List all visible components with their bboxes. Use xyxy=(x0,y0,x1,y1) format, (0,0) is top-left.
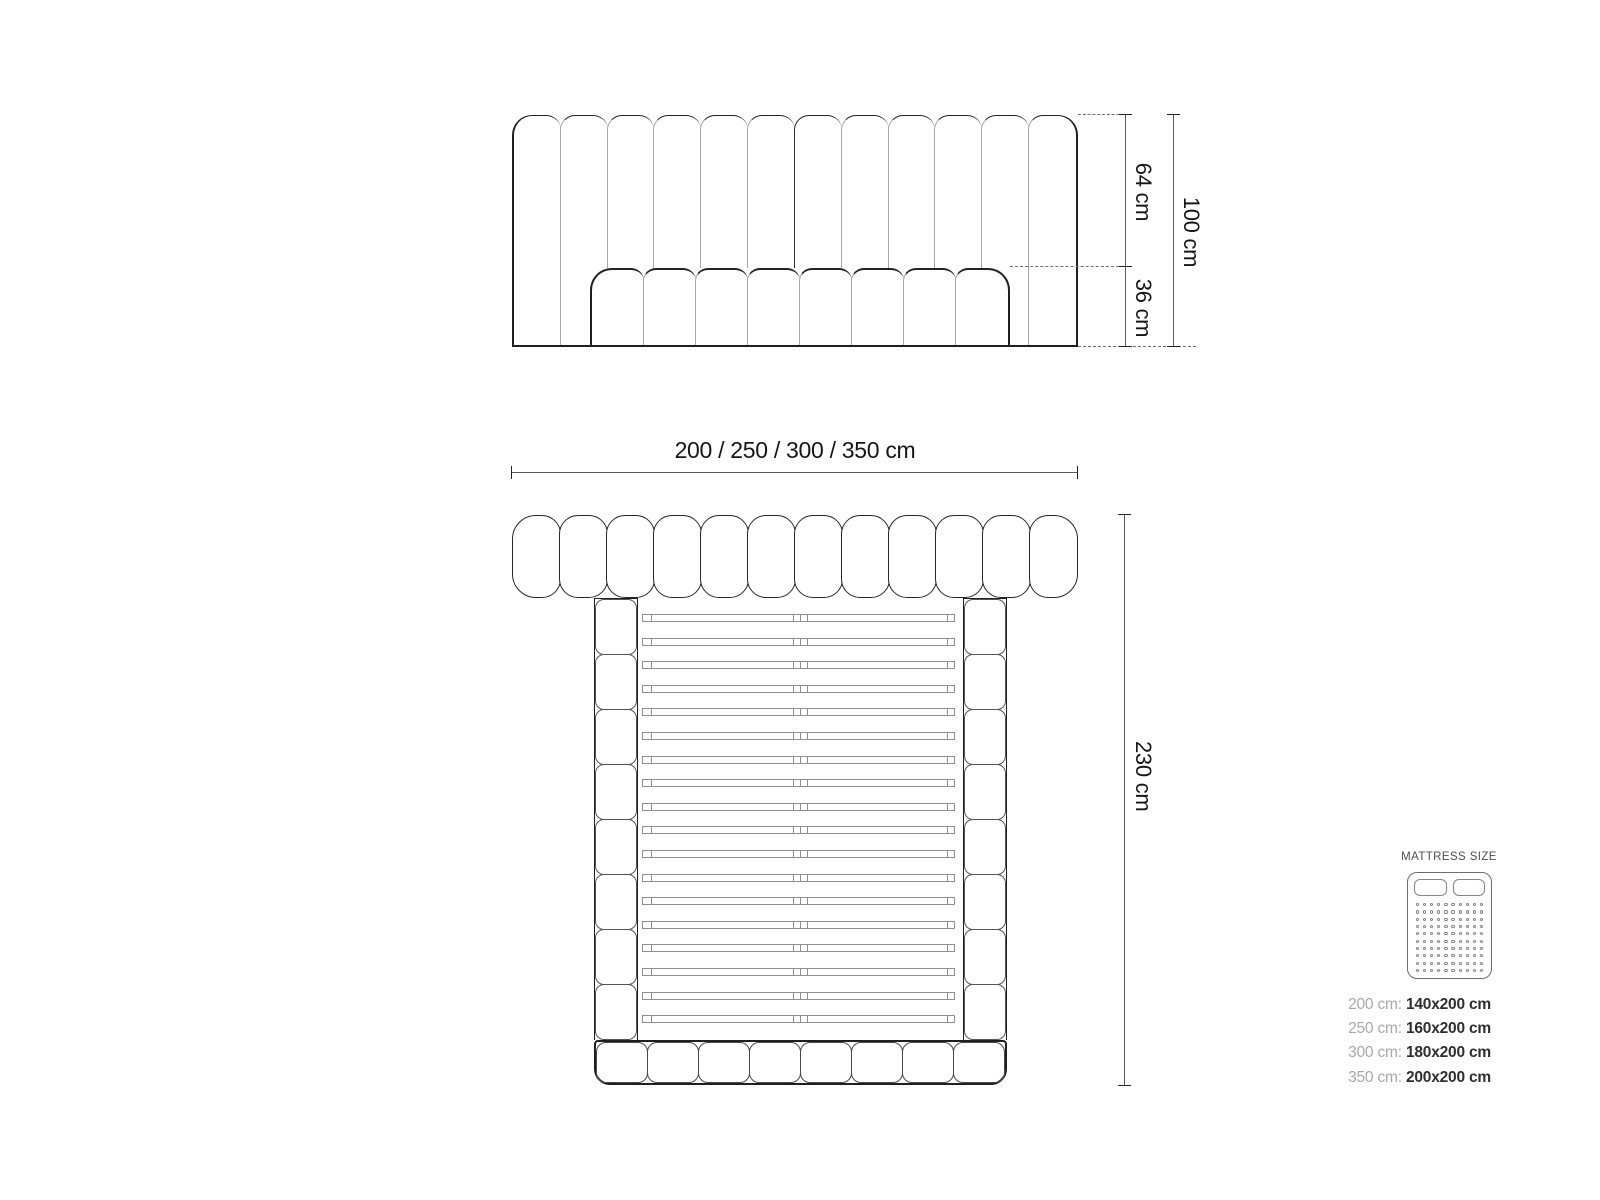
mattress-dot xyxy=(1416,962,1419,965)
slat-tick xyxy=(651,969,652,975)
slat-tick xyxy=(807,827,808,833)
slat-tick xyxy=(800,615,801,621)
slat-tick xyxy=(800,945,801,951)
slat-tick xyxy=(947,662,948,668)
mattress-dot xyxy=(1430,940,1433,943)
slat-tick xyxy=(807,733,808,739)
mattress-dot xyxy=(1480,910,1483,913)
slat-tick xyxy=(807,639,808,645)
rail-tuft xyxy=(595,709,637,765)
mattress-dot xyxy=(1480,962,1483,965)
mattress-dot xyxy=(1473,910,1476,913)
rail-tuft xyxy=(964,709,1006,765)
mattress-dot xyxy=(1416,932,1419,935)
headboard-tuft xyxy=(606,515,655,598)
mattress-dot xyxy=(1423,962,1426,965)
tick xyxy=(1077,466,1078,479)
pillow-row xyxy=(1414,879,1485,896)
headboard-tuft xyxy=(888,515,937,598)
mattress-size-value: 140x200 cm xyxy=(1406,996,1491,1013)
mattress-dot xyxy=(1451,969,1454,972)
mattress-dot xyxy=(1437,925,1440,928)
mattress-dot xyxy=(1444,910,1447,913)
headboard-tuft xyxy=(1029,515,1078,598)
slat-tick xyxy=(947,615,948,621)
mattress-dot xyxy=(1459,947,1462,950)
mattress-dot xyxy=(1430,969,1433,972)
dim-line-depth xyxy=(1124,515,1125,1086)
slat-tick xyxy=(947,709,948,715)
mattress-dot xyxy=(1459,962,1462,965)
slat-tick xyxy=(807,875,808,881)
slat-tick xyxy=(800,969,801,975)
legend-size-list: 200 cm: 140x200 cm 250 cm: 160x200 cm 30… xyxy=(1290,993,1491,1090)
base-cushion xyxy=(851,268,904,345)
slat-tick xyxy=(651,898,652,904)
mattress-dot xyxy=(1473,925,1476,928)
footboard-tuft xyxy=(647,1042,699,1083)
mattress-dot xyxy=(1473,918,1476,921)
mattress-dot xyxy=(1459,903,1462,906)
slat xyxy=(642,992,955,1000)
slat-tick xyxy=(947,945,948,951)
slat xyxy=(642,638,955,646)
tick xyxy=(511,466,512,479)
slat-tick xyxy=(800,851,801,857)
mattress-dot xyxy=(1473,954,1476,957)
mattress-dot xyxy=(1437,918,1440,921)
mattress-dot xyxy=(1444,918,1447,921)
plan-headboard xyxy=(512,515,1078,598)
slat-tick xyxy=(651,993,652,999)
slat-tick xyxy=(793,615,794,621)
slat-tick xyxy=(793,969,794,975)
slat-tick xyxy=(800,709,801,715)
base-cushion xyxy=(590,268,644,345)
slat-tick xyxy=(651,780,652,786)
mattress-dot xyxy=(1480,947,1483,950)
rail-tuft xyxy=(964,599,1006,655)
pillow-icon xyxy=(1453,879,1486,896)
slat xyxy=(642,944,955,952)
slat-tick xyxy=(800,1016,801,1022)
mattress-dot xyxy=(1466,910,1469,913)
slat-tick xyxy=(807,969,808,975)
slat xyxy=(642,874,955,882)
slat-tick xyxy=(651,733,652,739)
mattress-dot xyxy=(1459,954,1462,957)
headboard-tuft xyxy=(700,515,749,598)
mattress-dot xyxy=(1416,903,1419,906)
mattress-dot xyxy=(1423,925,1426,928)
mattress-dot xyxy=(1430,925,1433,928)
slat xyxy=(642,1015,955,1023)
plan-slat-area xyxy=(642,614,955,1026)
slat-tick xyxy=(807,922,808,928)
mattress-dot xyxy=(1473,932,1476,935)
slat-tick xyxy=(807,1016,808,1022)
slat-tick xyxy=(800,733,801,739)
base-cushion xyxy=(695,268,748,345)
slat-tick xyxy=(800,922,801,928)
mattress-dot xyxy=(1437,954,1440,957)
footboard-tuft xyxy=(749,1042,801,1083)
headboard-tuft xyxy=(747,515,796,598)
mattress-dot xyxy=(1416,969,1419,972)
slat-tick xyxy=(947,922,948,928)
mattress-dot xyxy=(1480,940,1483,943)
slat xyxy=(642,968,955,976)
slat-tick xyxy=(947,639,948,645)
mattress-dot xyxy=(1459,940,1462,943)
rail-tuft xyxy=(964,929,1006,985)
mattress-dot xyxy=(1437,903,1440,906)
headboard-tuft xyxy=(841,515,890,598)
slat-tick xyxy=(947,851,948,857)
plan-side-rail-left xyxy=(594,598,638,1040)
slat-tick xyxy=(947,993,948,999)
pillow-icon xyxy=(1414,879,1447,896)
mattress-dot xyxy=(1451,954,1454,957)
mattress-dot xyxy=(1480,903,1483,906)
mattress-dot xyxy=(1451,947,1454,950)
rail-tuft xyxy=(595,654,637,710)
slat-tick xyxy=(651,851,652,857)
mattress-dot xyxy=(1423,940,1426,943)
slat-tick xyxy=(800,757,801,763)
slat-tick xyxy=(807,780,808,786)
tick xyxy=(1118,1085,1131,1086)
slat-tick xyxy=(800,662,801,668)
mattress-size-value: 160x200 cm xyxy=(1406,1020,1491,1037)
mattress-dot xyxy=(1416,940,1419,943)
mattress-dot xyxy=(1437,932,1440,935)
mattress-dot xyxy=(1416,910,1419,913)
tick xyxy=(1167,346,1180,347)
slat xyxy=(642,850,955,858)
slat-tick xyxy=(651,662,652,668)
slat-tick xyxy=(800,804,801,810)
slat-tick xyxy=(651,639,652,645)
slat-tick xyxy=(807,851,808,857)
rail-tuft xyxy=(595,929,637,985)
mattress-dot xyxy=(1480,932,1483,935)
legend-row: 200 cm: 140x200 cm xyxy=(1290,993,1491,1017)
slat-tick xyxy=(947,686,948,692)
slat-tick xyxy=(800,780,801,786)
dim-label-total-height: 100 cm xyxy=(1178,192,1204,272)
slat-tick xyxy=(807,993,808,999)
mattress-dot xyxy=(1430,903,1433,906)
footboard-tuft xyxy=(953,1042,1005,1083)
extension-dash-middle xyxy=(1010,266,1129,267)
mattress-dot xyxy=(1459,910,1462,913)
slat-tick xyxy=(651,922,652,928)
mattress-dot xyxy=(1423,947,1426,950)
slat-tick xyxy=(793,709,794,715)
slat-tick xyxy=(793,733,794,739)
slat-tick xyxy=(947,898,948,904)
mattress-dot-grid xyxy=(1414,903,1485,972)
slat-tick xyxy=(651,615,652,621)
rail-tuft xyxy=(595,874,637,930)
slat-tick xyxy=(651,875,652,881)
slat-tick xyxy=(947,804,948,810)
slat-tick xyxy=(947,875,948,881)
mattress-dot xyxy=(1459,932,1462,935)
headboard-panel xyxy=(1028,115,1078,345)
slat xyxy=(642,614,955,622)
mattress-dot xyxy=(1437,940,1440,943)
rail-tuft xyxy=(595,764,637,820)
mattress-dot xyxy=(1480,954,1483,957)
slat-tick xyxy=(651,827,652,833)
slat-tick xyxy=(793,686,794,692)
slat-tick xyxy=(793,875,794,881)
headboard-tuft xyxy=(653,515,702,598)
rail-tuft xyxy=(595,819,637,875)
legend-row: 250 cm: 160x200 cm xyxy=(1290,1017,1491,1041)
slat-tick xyxy=(807,662,808,668)
footboard-tuft xyxy=(698,1042,750,1083)
mattress-dot xyxy=(1480,918,1483,921)
slat-tick xyxy=(800,993,801,999)
mattress-dot xyxy=(1451,925,1454,928)
mattress-dot xyxy=(1444,940,1447,943)
mattress-dot xyxy=(1466,925,1469,928)
footboard-tuft xyxy=(596,1042,648,1083)
mattress-dot xyxy=(1459,925,1462,928)
front-bed-base xyxy=(590,268,1010,347)
mattress-dot xyxy=(1416,954,1419,957)
slat-tick xyxy=(651,1016,652,1022)
slat-tick xyxy=(947,757,948,763)
slat-tick xyxy=(947,733,948,739)
mattress-dot xyxy=(1473,962,1476,965)
mattress-dot xyxy=(1466,903,1469,906)
mattress-dot xyxy=(1451,940,1454,943)
mattress-dot xyxy=(1430,918,1433,921)
slat-tick xyxy=(793,898,794,904)
slat-tick xyxy=(793,757,794,763)
slat-tick xyxy=(800,639,801,645)
headboard-tuft xyxy=(982,515,1031,598)
mattress-dot xyxy=(1430,947,1433,950)
legend-title: MATTRESS SIZE xyxy=(1394,851,1504,863)
mattress-dot xyxy=(1473,903,1476,906)
slat-tick xyxy=(800,827,801,833)
slat-tick xyxy=(800,686,801,692)
base-cushion xyxy=(643,268,696,345)
mattress-dot xyxy=(1423,932,1426,935)
mattress-size-value: 180x200 cm xyxy=(1406,1044,1491,1061)
headboard-tuft xyxy=(935,515,984,598)
footboard-tuft xyxy=(902,1042,954,1083)
dim-line-total-height xyxy=(1173,115,1174,347)
mattress-dot xyxy=(1444,932,1447,935)
mattress-dot xyxy=(1416,925,1419,928)
mattress-dot xyxy=(1423,910,1426,913)
mattress-dot xyxy=(1451,918,1454,921)
dim-line-height-segments xyxy=(1125,115,1126,347)
mattress-dot xyxy=(1437,910,1440,913)
mattress-dot xyxy=(1466,932,1469,935)
mattress-dot xyxy=(1466,962,1469,965)
mattress-dot xyxy=(1480,925,1483,928)
mattress-dot xyxy=(1444,969,1447,972)
slat-tick xyxy=(793,1016,794,1022)
slat-tick xyxy=(651,709,652,715)
mattress-dot xyxy=(1466,954,1469,957)
slat-tick xyxy=(793,922,794,928)
rail-tuft xyxy=(964,764,1006,820)
base-cushion xyxy=(799,268,852,345)
mattress-dot xyxy=(1416,918,1419,921)
mattress-dot xyxy=(1437,969,1440,972)
mattress-dot xyxy=(1459,969,1462,972)
tick xyxy=(1167,114,1180,115)
slat xyxy=(642,756,955,764)
plan-footboard xyxy=(594,1040,1007,1085)
slat-tick xyxy=(947,969,948,975)
slat-tick xyxy=(793,804,794,810)
rail-tuft xyxy=(595,599,637,655)
tick xyxy=(1119,114,1132,115)
mattress-dot xyxy=(1430,910,1433,913)
slat-tick xyxy=(807,898,808,904)
mattress-dot xyxy=(1451,910,1454,913)
mattress-dot xyxy=(1451,962,1454,965)
mattress-dot xyxy=(1444,954,1447,957)
mattress-dot xyxy=(1466,969,1469,972)
dim-label-width-options: 200 / 250 / 300 / 350 cm xyxy=(645,437,945,464)
frame-size-label: 200 cm: xyxy=(1348,996,1402,1013)
frame-size-label: 350 cm: xyxy=(1348,1069,1402,1086)
slat xyxy=(642,732,955,740)
mattress-icon xyxy=(1407,872,1492,979)
mattress-dot xyxy=(1437,947,1440,950)
mattress-dot xyxy=(1473,940,1476,943)
slat-tick xyxy=(800,875,801,881)
slat-tick xyxy=(807,757,808,763)
mattress-dot xyxy=(1430,932,1433,935)
legend-row: 350 cm: 200x200 cm xyxy=(1290,1066,1491,1090)
rail-tuft xyxy=(964,984,1006,1040)
base-cushion xyxy=(903,268,956,345)
footboard-tuft xyxy=(800,1042,852,1083)
mattress-dot xyxy=(1423,903,1426,906)
mattress-dot xyxy=(1444,925,1447,928)
slat xyxy=(642,826,955,834)
headboard-panel xyxy=(512,115,561,345)
mattress-dot xyxy=(1466,947,1469,950)
slat-tick xyxy=(807,804,808,810)
mattress-dot xyxy=(1473,969,1476,972)
slat-tick xyxy=(793,851,794,857)
legend-row: 300 cm: 180x200 cm xyxy=(1290,1041,1491,1065)
dim-label-lower-height: 36 cm xyxy=(1130,273,1156,343)
slat-tick xyxy=(651,804,652,810)
slat-tick xyxy=(807,709,808,715)
base-cushion xyxy=(955,268,1010,345)
slat-tick xyxy=(793,639,794,645)
slat-tick xyxy=(651,945,652,951)
slat xyxy=(642,779,955,787)
mattress-dot xyxy=(1466,918,1469,921)
slat-tick xyxy=(800,898,801,904)
slat-tick xyxy=(793,827,794,833)
mattress-dot xyxy=(1451,932,1454,935)
base-cushion xyxy=(747,268,800,345)
tick xyxy=(1119,266,1132,267)
mattress-dot xyxy=(1423,969,1426,972)
slat xyxy=(642,661,955,669)
slat-tick xyxy=(807,686,808,692)
frame-size-label: 250 cm: xyxy=(1348,1020,1402,1037)
slat xyxy=(642,803,955,811)
slat xyxy=(642,685,955,693)
slat-tick xyxy=(807,945,808,951)
slat xyxy=(642,708,955,716)
headboard-tuft xyxy=(794,515,843,598)
slat-tick xyxy=(793,993,794,999)
dim-label-depth: 230 cm xyxy=(1130,741,1156,811)
mattress-dot xyxy=(1437,962,1440,965)
mattress-dot xyxy=(1423,954,1426,957)
mattress-dot xyxy=(1459,918,1462,921)
bed-dimension-diagram: 64 cm 36 cm 100 cm 200 / 250 / 300 / 350… xyxy=(0,0,1600,1200)
mattress-size-value: 200x200 cm xyxy=(1406,1069,1491,1086)
mattress-dot xyxy=(1451,903,1454,906)
rail-tuft xyxy=(964,654,1006,710)
plan-side-rail-right xyxy=(963,598,1007,1040)
tick xyxy=(1118,514,1131,515)
rail-tuft xyxy=(964,819,1006,875)
slat-tick xyxy=(947,1016,948,1022)
slat xyxy=(642,897,955,905)
slat-tick xyxy=(793,662,794,668)
dim-label-upper-height: 64 cm xyxy=(1130,157,1156,227)
mattress-dot xyxy=(1430,954,1433,957)
mattress-dot xyxy=(1423,918,1426,921)
mattress-dot xyxy=(1416,947,1419,950)
slat-tick xyxy=(947,780,948,786)
mattress-dot xyxy=(1444,903,1447,906)
headboard-tuft xyxy=(559,515,608,598)
slat-tick xyxy=(793,945,794,951)
slat-tick xyxy=(793,780,794,786)
mattress-dot xyxy=(1430,962,1433,965)
rail-tuft xyxy=(595,984,637,1040)
mattress-dot xyxy=(1480,969,1483,972)
headboard-tuft xyxy=(512,515,561,598)
slat-tick xyxy=(651,757,652,763)
rail-tuft xyxy=(964,874,1006,930)
mattress-dot xyxy=(1444,947,1447,950)
mattress-dot xyxy=(1444,962,1447,965)
frame-size-label: 300 cm: xyxy=(1348,1044,1402,1061)
mattress-dot xyxy=(1466,940,1469,943)
slat-tick xyxy=(807,615,808,621)
footboard-tuft xyxy=(851,1042,903,1083)
slat xyxy=(642,921,955,929)
mattress-dot xyxy=(1473,947,1476,950)
slat-tick xyxy=(947,827,948,833)
tick xyxy=(1119,346,1132,347)
dim-line-width xyxy=(512,472,1078,473)
slat-tick xyxy=(651,686,652,692)
